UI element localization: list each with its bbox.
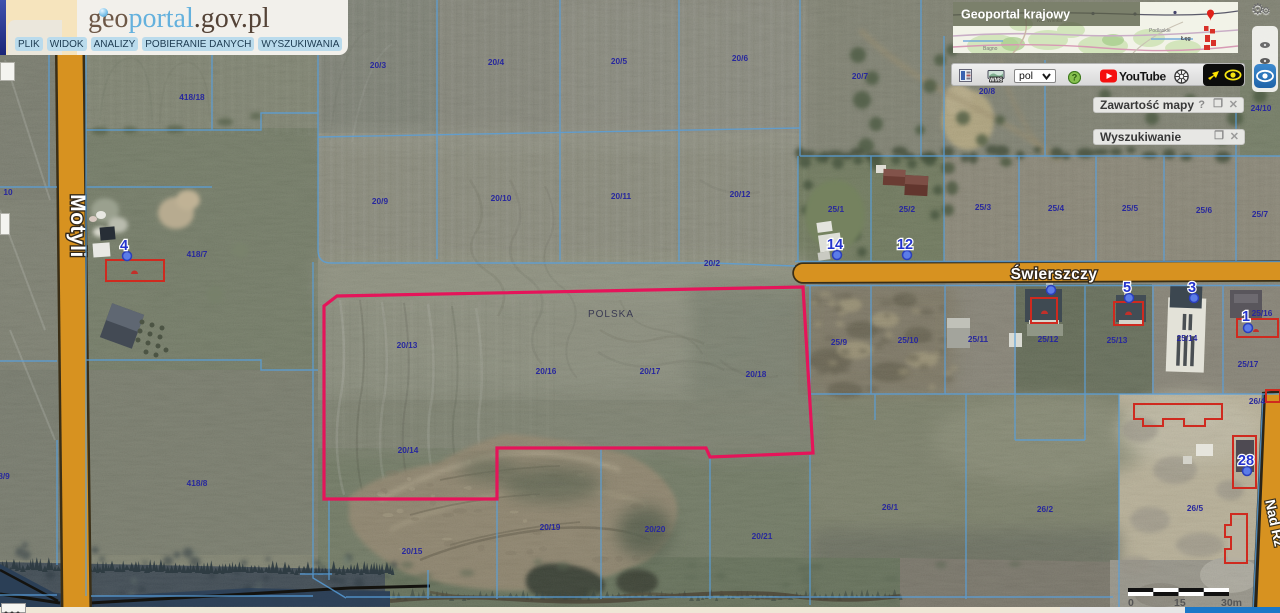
svg-text:20/16: 20/16 [536,366,557,376]
svg-text:25/16: 25/16 [1252,308,1273,318]
svg-text:20/5: 20/5 [611,56,628,66]
svg-text:YouTube: YouTube [1119,70,1166,84]
svg-text:25/14: 25/14 [1177,333,1198,343]
svg-text:25/2: 25/2 [899,204,916,214]
svg-text:418/18: 418/18 [179,92,205,102]
svg-text:Bagno: Bagno [983,46,998,52]
svg-text:25/13: 25/13 [1107,335,1128,345]
svg-text:20/13: 20/13 [397,340,418,350]
svg-text:26/4: 26/4 [1249,396,1266,406]
svg-text:20/4: 20/4 [488,57,505,67]
svg-text:20/10: 20/10 [491,193,512,203]
svg-text:20/7: 20/7 [852,71,869,81]
svg-text:24/10: 24/10 [1251,103,1272,113]
svg-text:25/12: 25/12 [1038,334,1059,344]
svg-text:14: 14 [827,237,843,253]
svg-text:418/7: 418/7 [187,249,208,259]
svg-text:25/1: 25/1 [828,204,845,214]
svg-text:25/6: 25/6 [1196,205,1213,215]
svg-text:20/18: 20/18 [746,369,767,379]
svg-text:Łęg: Łęg [1181,36,1191,42]
svg-text:Świerszczy: Świerszczy [1011,265,1098,283]
svg-text:20/12: 20/12 [730,189,751,199]
svg-text:20/20: 20/20 [645,524,666,534]
svg-text:26/5: 26/5 [1187,503,1204,513]
svg-text:20/21: 20/21 [752,531,773,541]
svg-text:20/2: 20/2 [704,258,721,268]
svg-text:25/3: 25/3 [975,202,992,212]
svg-text:10: 10 [3,187,13,197]
svg-text:25/10: 25/10 [898,335,919,345]
svg-text:26/2: 26/2 [1037,504,1054,514]
svg-text:20/9: 20/9 [372,196,389,206]
svg-text:4: 4 [120,238,128,254]
svg-text:20/6: 20/6 [732,53,749,63]
svg-text:25/17: 25/17 [1238,359,1259,369]
svg-text:12: 12 [897,237,913,253]
svg-text:26/1: 26/1 [882,502,899,512]
svg-text:Podlaskie: Podlaskie [1149,28,1171,34]
svg-text:POLSKA: POLSKA [588,309,634,320]
svg-text:28: 28 [1238,453,1254,469]
svg-text:25/7: 25/7 [1252,209,1269,219]
svg-text:8/9: 8/9 [0,471,10,481]
svg-text:418/8: 418/8 [187,478,208,488]
svg-text:25/5: 25/5 [1122,203,1139,213]
svg-text:WMS: WMS [989,78,1003,84]
svg-text:20/11: 20/11 [611,191,632,201]
svg-text:25/11: 25/11 [968,334,989,344]
svg-text:3: 3 [1188,280,1196,296]
svg-text:1: 1 [1242,309,1250,325]
svg-text:5: 5 [1123,280,1131,296]
svg-text:20/17: 20/17 [640,366,661,376]
svg-text:20/8: 20/8 [979,86,996,96]
svg-text:20/15: 20/15 [402,546,423,556]
svg-text:20/14: 20/14 [398,445,419,455]
svg-text:?: ? [1072,73,1078,83]
svg-text:20/3: 20/3 [370,60,387,70]
svg-text:Geoportal krajowy: Geoportal krajowy [961,8,1070,22]
svg-text:25/9: 25/9 [831,337,848,347]
svg-text:20/19: 20/19 [540,522,561,532]
svg-text:25/4: 25/4 [1048,203,1065,213]
